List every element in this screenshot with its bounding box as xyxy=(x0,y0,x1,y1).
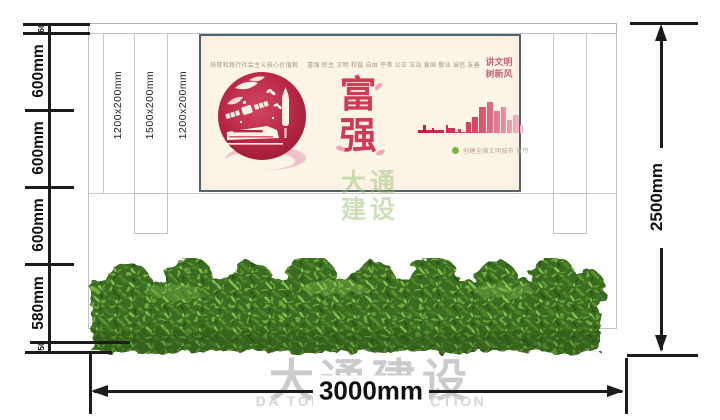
dim-right-line-top xyxy=(660,28,663,148)
dim-ext-line-left xyxy=(89,352,92,414)
core-values-title: 培育和践行社会主义核心价值观 xyxy=(210,63,298,69)
theme-char-1: 富 xyxy=(334,74,382,115)
poster-right-slogan: 讲文明 树新风 xyxy=(482,56,516,80)
slogan-line-1: 讲文明 xyxy=(482,56,516,68)
dim-label-3000: 3000mm xyxy=(313,376,429,407)
poster-header-text: 培育和践行社会主义核心价值观富强 民主 文明 和谐 自由 平等 公正 法治 爱国… xyxy=(210,60,480,69)
dim-label-50: 50 xyxy=(36,341,46,350)
wall-strip-line xyxy=(103,33,104,193)
arrowhead-up-icon xyxy=(655,24,667,41)
dim-tick xyxy=(25,351,112,354)
slogan-line-2: 树新风 xyxy=(482,68,516,80)
dim-label-580: 580mm xyxy=(30,276,48,329)
dim-label-600-2: 600mm xyxy=(30,121,48,174)
wall-strip-line xyxy=(586,33,587,193)
dim-tick xyxy=(627,354,698,357)
wall-strip-line xyxy=(134,33,135,193)
elevation-drawing: 1200x200mm 1500x200mm 1200x200mm 培育和践行社会… xyxy=(0,0,720,420)
arrowhead-down-icon xyxy=(655,335,667,352)
arrowhead-left-icon xyxy=(91,385,108,397)
dim-label-600-3: 600mm xyxy=(30,198,48,251)
dim-tick xyxy=(23,23,90,26)
watermark-center-line2: 建设 xyxy=(337,197,403,224)
dim-tick xyxy=(25,109,74,112)
wall-pillar-right xyxy=(553,193,587,234)
badge-icon xyxy=(452,147,459,154)
wall-pillar-left xyxy=(134,193,168,234)
arrowhead-right-icon xyxy=(607,385,624,397)
dim-ext-line-right xyxy=(625,358,628,414)
badge-caption: 创建全国文明城市 宣传 xyxy=(463,146,529,155)
watermark-center-line1: 大通 xyxy=(337,170,403,197)
wall-strip-line xyxy=(553,33,554,193)
core-values-list: 富强 民主 文明 和谐 自由 平等 公正 法治 爱国 敬业 诚信 友善 xyxy=(307,63,480,69)
dim-label-600-1: 600mm xyxy=(30,44,48,97)
dim-tick xyxy=(25,263,74,266)
dim-label-2500: 2500mm xyxy=(647,163,667,231)
poster-badge: 创建全国文明城市 宣传 xyxy=(452,146,529,155)
dim-tick xyxy=(23,32,90,35)
panel-size-label-3: 1200x200mm xyxy=(177,71,189,140)
wall-strip-line xyxy=(167,33,168,193)
dim-tick xyxy=(25,186,74,189)
dim-label-60: 60 xyxy=(36,23,46,32)
city-skyline-illustration xyxy=(418,101,526,135)
panel-size-label-2: 1500x200mm xyxy=(144,71,156,140)
hedge-illustration xyxy=(84,258,608,362)
panel-size-label-1: 1200x200mm xyxy=(112,71,124,140)
papercut-circle-illustration xyxy=(213,70,311,174)
watermark-center: 大通 建设 xyxy=(337,170,403,224)
